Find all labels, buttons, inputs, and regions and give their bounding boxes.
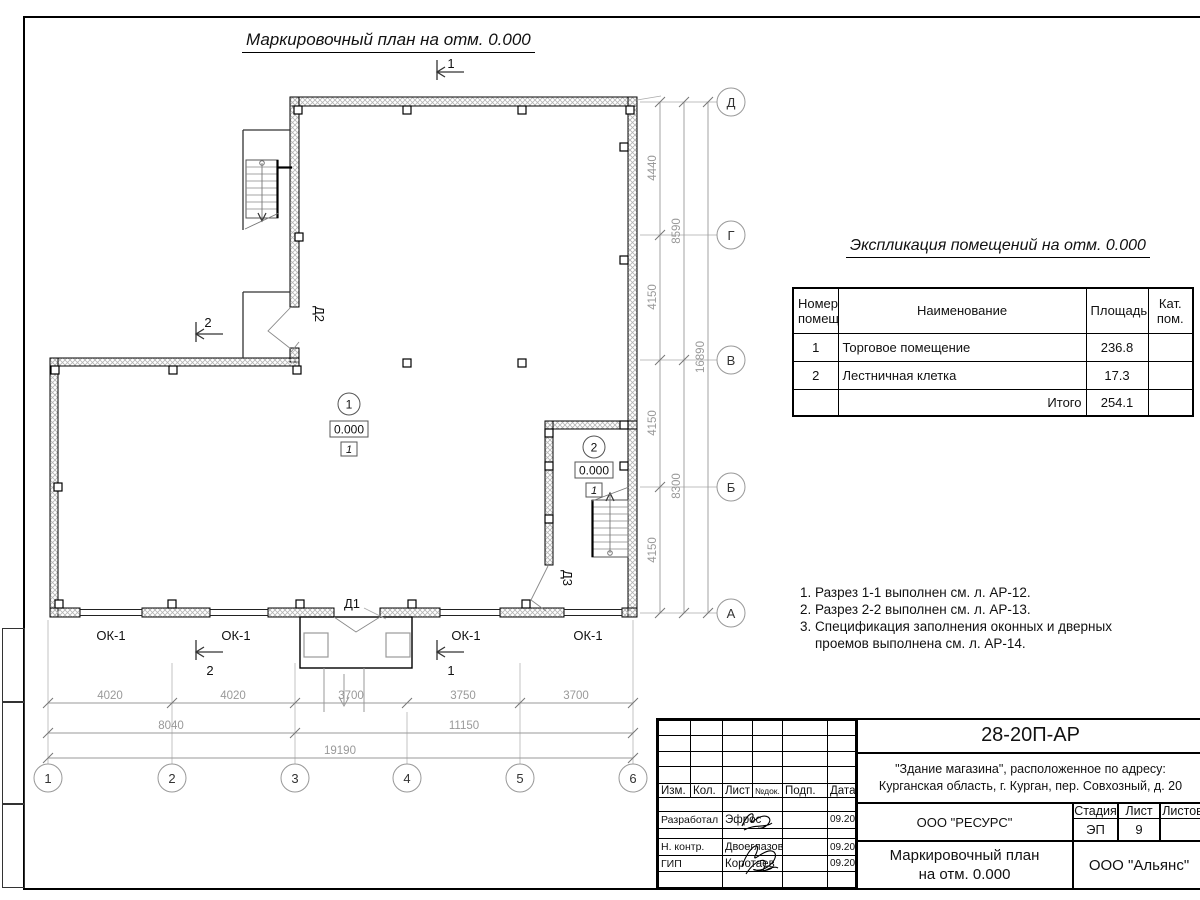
- axis-label: 4: [403, 771, 410, 786]
- axis-label: В: [727, 353, 736, 368]
- room-num: 2: [793, 361, 838, 389]
- note-line: 2. Разрез 2-2 выполнен см. л. АР-13.: [800, 601, 1112, 618]
- room-name: Торговое помещение: [838, 333, 1086, 361]
- window-label: ОК-1: [221, 628, 250, 643]
- sheet-value: 9: [1117, 818, 1159, 840]
- sheets-value: [1159, 818, 1200, 840]
- col-ndok: №док.: [753, 783, 783, 797]
- col-podp: Подп.: [783, 783, 828, 797]
- contractor-org: ООО "Альянс": [1072, 840, 1200, 888]
- room-num: 1: [793, 333, 838, 361]
- table-total-row: Итого 254.1: [793, 389, 1193, 416]
- door-label-d2: Д2: [312, 306, 327, 322]
- col-data: Дата: [828, 783, 858, 797]
- window-label: ОК-1: [451, 628, 480, 643]
- role-label: ГИП: [659, 855, 723, 871]
- note-line: проемов выполнена см. л. АР-14.: [800, 635, 1112, 652]
- door-label-d3: Д3: [560, 570, 575, 586]
- dim-label: 3750: [450, 690, 476, 702]
- sheet-header: Лист: [1117, 802, 1159, 818]
- upper-stair-annex: [243, 130, 292, 230]
- sheets-header: Листов: [1159, 802, 1200, 818]
- explication-table: Номер помещ. Наименование Площадь Кат. п…: [792, 287, 1194, 417]
- dim-label: 11150: [449, 720, 479, 732]
- document-code: 28-20П-АР: [855, 718, 1200, 752]
- designer-org: ООО "РЕСУРС": [855, 802, 1072, 840]
- room-marker-2: 2 0.000 1: [575, 436, 613, 497]
- axis-label: 2: [168, 771, 175, 786]
- col-izm: Изм.: [659, 783, 691, 797]
- col-header-area: Площадь: [1086, 288, 1148, 333]
- room-elevation: 0.000: [579, 464, 609, 478]
- signature-cell: [783, 839, 828, 855]
- dim-label: 4020: [97, 690, 123, 702]
- signature-cell: [783, 855, 828, 871]
- axis-label: Д: [727, 95, 736, 110]
- explication-title: Экспликация помещений на отм. 0.000: [846, 237, 1150, 258]
- object-description: "Здание магазина", расположенное по адре…: [855, 752, 1200, 802]
- section-mark-label: 2: [206, 663, 213, 678]
- axis-label: А: [727, 606, 736, 621]
- total-label: Итого: [838, 389, 1086, 416]
- dim-label: 8590: [671, 218, 683, 244]
- axis-label: 6: [629, 771, 636, 786]
- table-row: 1 Торговое помещение 236.8: [793, 333, 1193, 361]
- role-date: 09.20: [828, 811, 858, 829]
- floor-type-marker: 1: [346, 444, 352, 456]
- col-header-cat: Кат. пом.: [1148, 288, 1193, 333]
- dim-label: 3700: [338, 690, 364, 702]
- drawing-title: Маркировочный план на отм. 0.000: [242, 30, 535, 53]
- axis-label: Г: [727, 228, 734, 243]
- dim-label: 4440: [647, 155, 659, 181]
- col-header-number: Номер помещ.: [793, 288, 838, 333]
- dim-label: 4150: [647, 410, 659, 436]
- notes-block: 1. Разрез 1-1 выполнен см. л. АР-12. 2. …: [800, 584, 1112, 652]
- window-label: ОК-1: [96, 628, 125, 643]
- interior-column: [403, 359, 411, 367]
- dim-label: 4020: [220, 690, 246, 702]
- axis-label: 1: [44, 771, 51, 786]
- signature-cell: [783, 811, 828, 829]
- axis-label: 3: [291, 771, 298, 786]
- room-number: 2: [591, 441, 598, 455]
- dim-label: 16890: [695, 341, 707, 373]
- title-block-signature-table: Изм. Кол. Лист №док. Подп. Дата Разработ…: [658, 720, 858, 888]
- axis-label: 5: [516, 771, 523, 786]
- role-label: Н. контр.: [659, 839, 723, 855]
- stage-value: ЭП: [1072, 818, 1117, 840]
- interior-column: [518, 359, 526, 367]
- dim-label: 4150: [647, 537, 659, 563]
- dim-label: 19190: [324, 745, 356, 757]
- table-row: 2 Лестничная клетка 17.3: [793, 361, 1193, 389]
- total-area: 254.1: [1086, 389, 1148, 416]
- room-number: 1: [346, 398, 353, 412]
- col-kol: Кол.: [691, 783, 723, 797]
- sheet-title: Маркировочный план на отм. 0.000: [855, 840, 1072, 888]
- dim-label: 3700: [563, 690, 589, 702]
- section-mark-label: 1: [447, 663, 454, 678]
- room-cat: [1148, 361, 1193, 389]
- col-list: Лист: [723, 783, 753, 797]
- axis-label: Б: [727, 480, 736, 495]
- opening-labels: ОК-1 ОК-1 ОК-1 ОК-1 Д1 Д2 Д3: [96, 306, 602, 643]
- role-name: Эфрос: [723, 811, 783, 829]
- room-name: Лестничная клетка: [838, 361, 1086, 389]
- role-date: 09.20: [828, 839, 858, 855]
- section-mark-label: 1: [447, 56, 454, 71]
- section-mark-label: 2: [204, 315, 211, 330]
- role-name: Двоеглазов: [723, 839, 783, 855]
- note-line: 1. Разрез 1-1 выполнен см. л. АР-12.: [800, 584, 1112, 601]
- dim-label: 8300: [671, 473, 683, 499]
- door-label-d1: Д1: [344, 596, 360, 611]
- role-name: Коротаев: [723, 855, 783, 871]
- role-label: Разработал: [659, 811, 723, 829]
- right-axis-bubbles: Д Г В Б А: [717, 88, 745, 627]
- room-marker-1: 1 0.000 1: [330, 393, 368, 456]
- room-elevation: 0.000: [334, 423, 364, 437]
- window-label: ОК-1: [573, 628, 602, 643]
- col-header-name: Наименование: [838, 288, 1086, 333]
- right-dimensions: 4440 4150 4150 4150 8590 8300 16890: [637, 96, 717, 618]
- dim-label: 4150: [647, 284, 659, 310]
- stage-header: Стадия: [1072, 802, 1117, 818]
- title-block: Изм. Кол. Лист №док. Подп. Дата Разработ…: [656, 718, 1200, 890]
- floor-type-marker: 1: [591, 485, 597, 497]
- room-area: 17.3: [1086, 361, 1148, 389]
- door-d3-swing: [531, 566, 548, 611]
- note-line: 3. Спецификация заполнения оконных и две…: [800, 618, 1112, 635]
- room-cat: [1148, 333, 1193, 361]
- role-date: 09.20: [828, 855, 858, 871]
- dim-label: 8040: [158, 720, 184, 732]
- bottom-axis-bubbles: 1 2 3 4 5 6: [34, 764, 647, 792]
- architectural-drawing-page: { "plan": { "title": "Маркировочный план…: [0, 0, 1200, 900]
- room-area: 236.8: [1086, 333, 1148, 361]
